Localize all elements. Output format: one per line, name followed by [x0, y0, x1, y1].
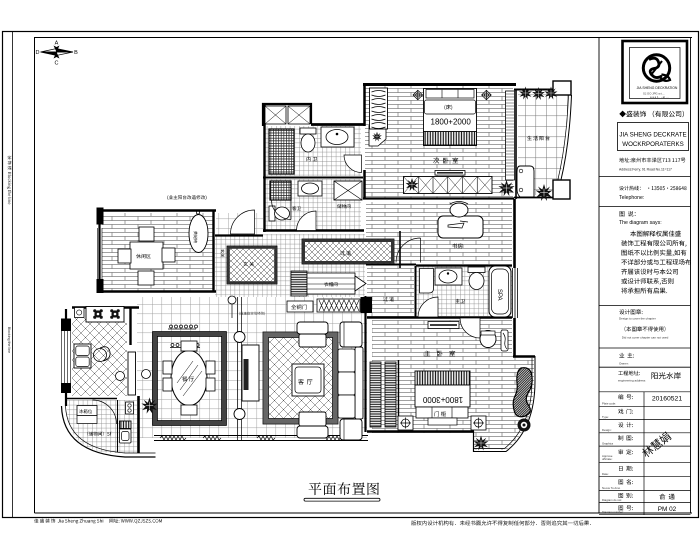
- svg-text:1800+2000: 1800+2000: [431, 118, 472, 127]
- svg-text:Plate code:: Plate code:: [602, 402, 616, 406]
- svg-text:D: D: [36, 50, 40, 56]
- svg-text:Graphics: Graphics: [602, 442, 614, 446]
- svg-text:officiate:: officiate:: [602, 457, 613, 461]
- svg-text:Telephone:: Telephone:: [619, 195, 644, 201]
- svg-text:JIA SHENG DECKRATION: JIA SHENG DECKRATION: [637, 86, 678, 90]
- svg-text:Design:: Design:: [602, 428, 612, 432]
- svg-text:Type:: Type:: [602, 415, 609, 419]
- svg-text:Address:Ferry, 91 Road No.11=1: Address:Ferry, 91 Road No.11=117: [619, 168, 672, 172]
- svg-text:20160521: 20160521: [652, 396, 682, 403]
- svg-text:engineering address:: engineering address:: [618, 379, 646, 383]
- svg-text:B: B: [74, 50, 78, 56]
- svg-text:a a a 1 . - at . ..: a a a 1 . - at . ..: [650, 95, 669, 99]
- svg-text:The diagram says:: The diagram says:: [619, 220, 662, 226]
- svg-text:Diagram number:: Diagram number:: [602, 510, 624, 514]
- svg-text:SPA: SPA: [496, 289, 502, 301]
- svg-text:PM 02: PM 02: [658, 506, 677, 513]
- svg-text:Owner:: Owner:: [619, 362, 629, 366]
- svg-text:C: C: [55, 61, 59, 67]
- svg-text:A: A: [55, 41, 59, 47]
- svg-text:1800+3000: 1800+3000: [422, 395, 463, 404]
- svg-text:JIA SHENG DECKRATE: JIA SHENG DECKRATE: [619, 132, 686, 139]
- svg-text:Did not cover chapter can n: Did not cover chapter can not used: [622, 336, 669, 340]
- svg-text:Diagram do not:: Diagram do not:: [602, 498, 622, 502]
- svg-text:WOCKRPORATERKS: WOCKRPORATERKS: [622, 141, 683, 148]
- svg-text:Blocking the line: Blocking the line: [7, 327, 11, 353]
- svg-text:Date:: Date:: [602, 472, 609, 476]
- svg-text:Design to cover the chapte: Design to cover the chapter: [619, 317, 656, 321]
- svg-text:No-ive To Amo: No-ive To Amo: [602, 486, 621, 490]
